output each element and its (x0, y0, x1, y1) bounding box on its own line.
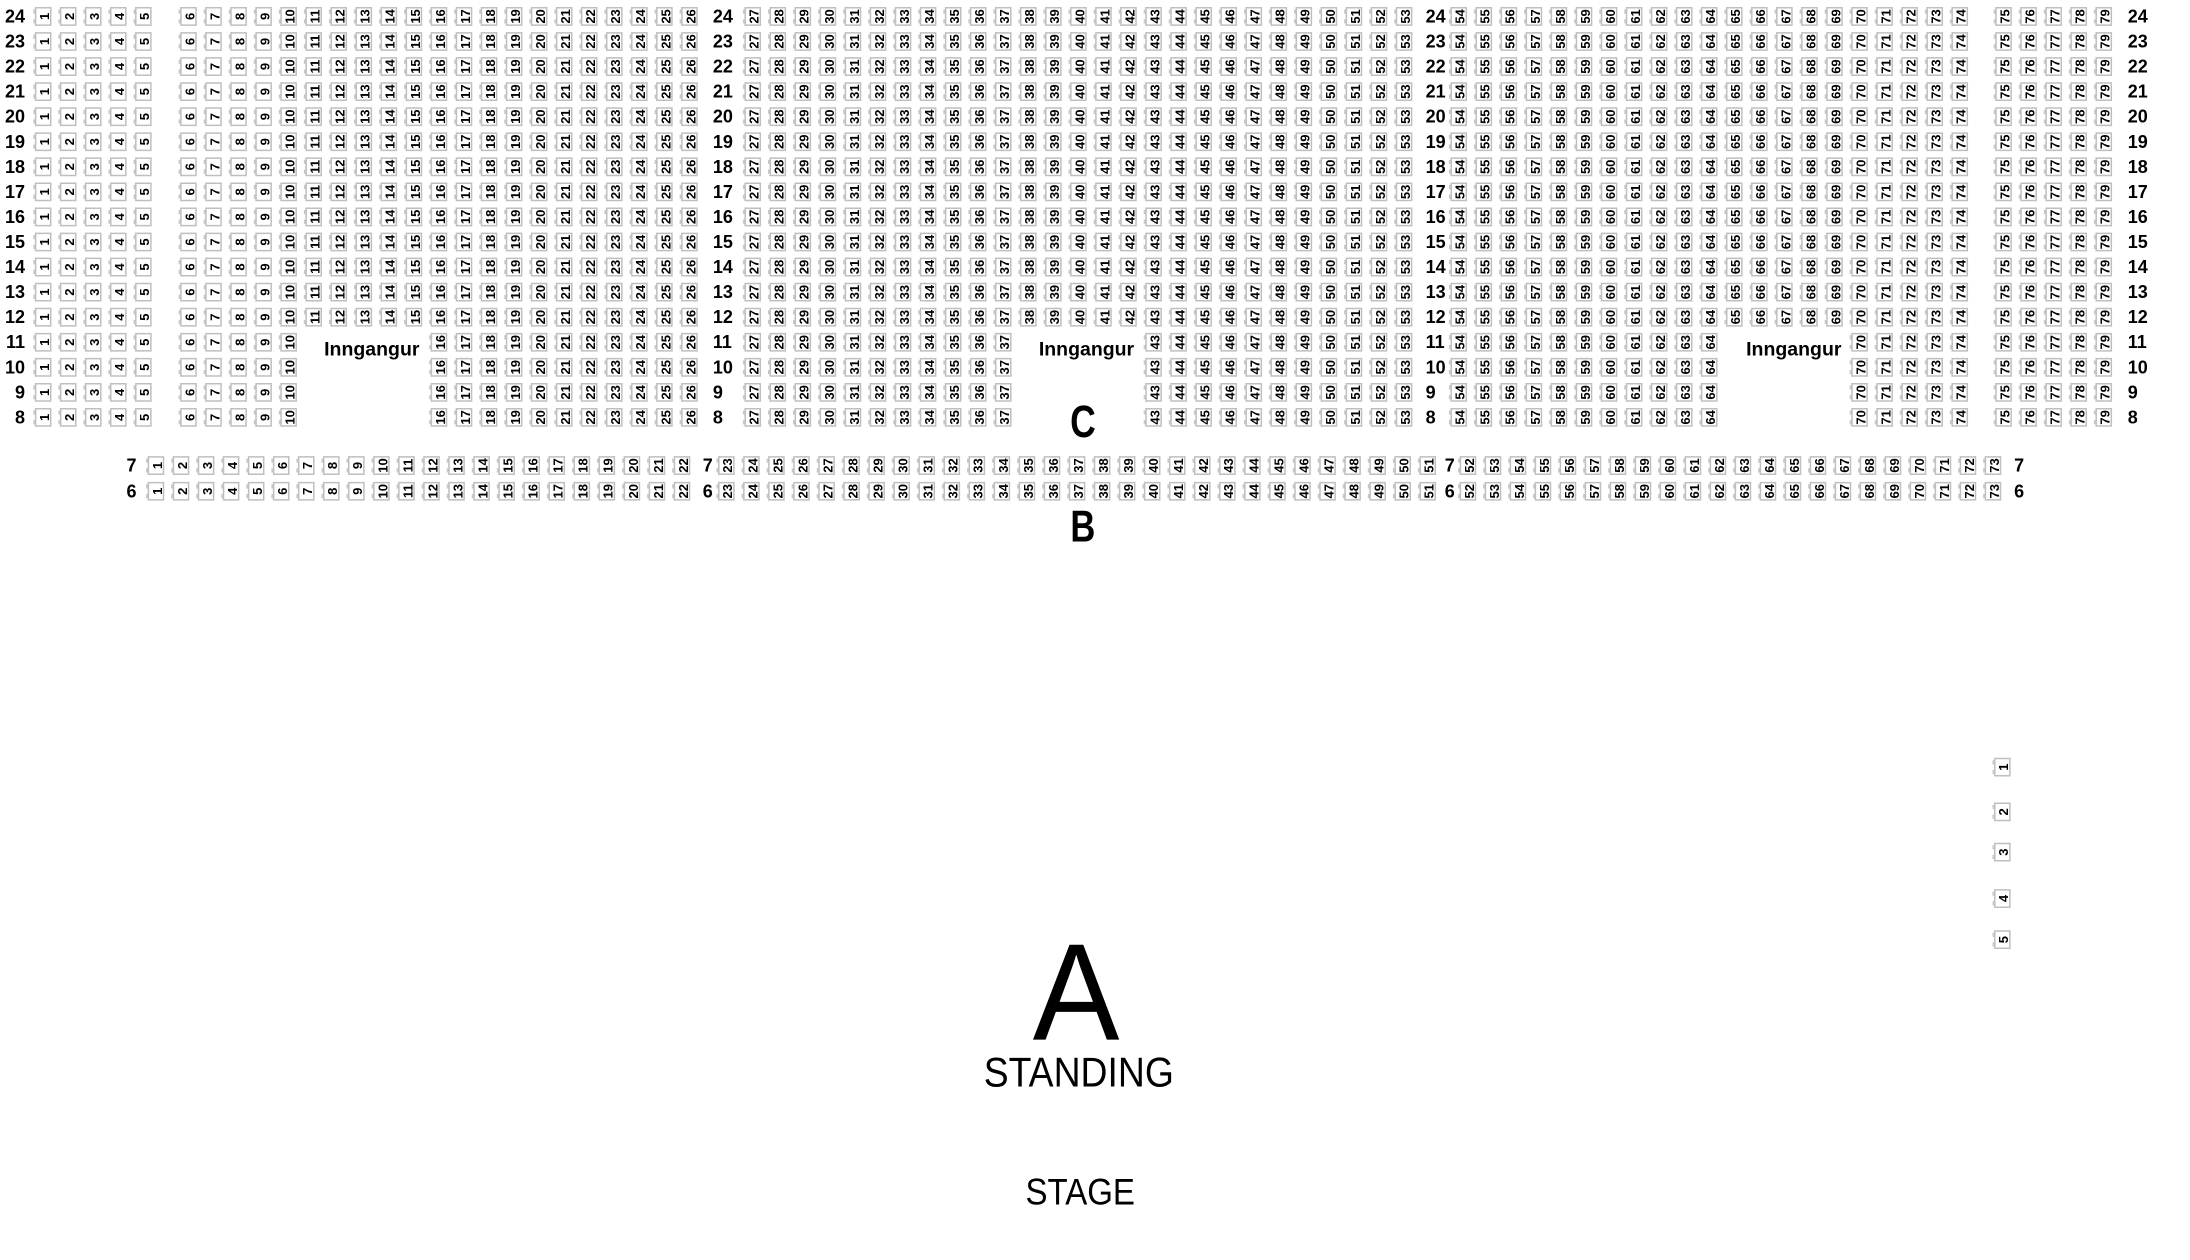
svg-text:22: 22 (583, 260, 598, 274)
svg-text:31: 31 (847, 385, 862, 399)
svg-text:4: 4 (112, 338, 127, 346)
svg-text:3: 3 (1996, 849, 2011, 856)
svg-text:9: 9 (257, 339, 272, 346)
svg-text:51: 51 (1348, 9, 1363, 23)
svg-text:17: 17 (1426, 182, 1446, 202)
svg-text:60: 60 (1603, 360, 1618, 374)
svg-text:64: 64 (1703, 59, 1718, 74)
svg-text:25: 25 (658, 34, 673, 48)
svg-text:54: 54 (1453, 159, 1468, 174)
svg-text:7: 7 (703, 456, 713, 476)
svg-text:17: 17 (458, 260, 473, 274)
svg-text:55: 55 (1478, 285, 1493, 299)
svg-text:14: 14 (475, 458, 490, 473)
svg-text:23: 23 (608, 160, 623, 174)
svg-text:3: 3 (87, 389, 102, 396)
svg-text:52: 52 (1462, 484, 1477, 498)
svg-text:50: 50 (1323, 109, 1338, 123)
svg-text:77: 77 (2048, 385, 2063, 399)
svg-text:5: 5 (137, 238, 152, 245)
svg-text:76: 76 (2022, 410, 2037, 424)
svg-text:56: 56 (1503, 335, 1518, 349)
svg-text:64: 64 (1703, 34, 1718, 49)
svg-text:60: 60 (1662, 484, 1677, 498)
svg-text:72: 72 (1904, 310, 1919, 324)
svg-text:9: 9 (2128, 382, 2138, 402)
svg-text:30: 30 (822, 260, 837, 274)
svg-text:14: 14 (383, 84, 398, 99)
svg-text:16: 16 (433, 109, 448, 123)
svg-text:60: 60 (1603, 185, 1618, 199)
svg-text:49: 49 (1298, 160, 1313, 174)
svg-text:79: 79 (2098, 360, 2113, 374)
svg-text:46: 46 (1296, 458, 1311, 472)
svg-text:5: 5 (137, 389, 152, 396)
svg-text:28: 28 (772, 385, 787, 399)
svg-text:1: 1 (37, 188, 52, 195)
svg-text:75: 75 (1997, 185, 2012, 199)
svg-text:60: 60 (1603, 9, 1618, 23)
svg-text:13: 13 (358, 160, 373, 174)
svg-text:76: 76 (2022, 360, 2037, 374)
svg-text:3: 3 (87, 13, 102, 20)
svg-text:79: 79 (2098, 285, 2113, 299)
svg-text:62: 62 (1653, 235, 1668, 249)
svg-text:44: 44 (1172, 184, 1187, 199)
svg-text:9: 9 (257, 163, 272, 170)
svg-text:45: 45 (1198, 185, 1213, 199)
svg-text:9: 9 (257, 63, 272, 70)
svg-text:15: 15 (1426, 232, 1446, 252)
svg-text:68: 68 (1803, 310, 1818, 324)
svg-text:13: 13 (358, 260, 373, 274)
svg-text:21: 21 (651, 484, 666, 498)
svg-text:59: 59 (1578, 185, 1593, 199)
svg-text:59: 59 (1578, 335, 1593, 349)
svg-text:51: 51 (1422, 458, 1437, 472)
svg-text:24: 24 (633, 334, 648, 349)
svg-text:19: 19 (1426, 132, 1446, 152)
svg-text:19: 19 (508, 185, 523, 199)
svg-text:30: 30 (822, 310, 837, 324)
svg-text:16: 16 (433, 235, 448, 249)
svg-text:41: 41 (1097, 59, 1112, 73)
svg-text:54: 54 (1453, 409, 1468, 424)
svg-text:73: 73 (1987, 458, 2002, 472)
svg-text:6: 6 (182, 138, 197, 145)
svg-text:35: 35 (947, 235, 962, 249)
svg-text:18: 18 (483, 210, 498, 224)
svg-text:32: 32 (872, 310, 887, 324)
svg-text:3: 3 (87, 113, 102, 120)
svg-text:10: 10 (5, 357, 25, 377)
svg-text:32: 32 (872, 235, 887, 249)
svg-text:67: 67 (1778, 210, 1793, 224)
svg-text:13: 13 (358, 235, 373, 249)
svg-text:13: 13 (1426, 282, 1446, 302)
svg-text:21: 21 (558, 34, 573, 48)
svg-text:45: 45 (1198, 385, 1213, 399)
svg-text:77: 77 (2048, 260, 2063, 274)
svg-text:45: 45 (1198, 210, 1213, 224)
svg-text:5: 5 (137, 213, 152, 220)
svg-text:1: 1 (1996, 764, 2011, 771)
svg-text:65: 65 (1728, 310, 1743, 324)
svg-text:4: 4 (112, 112, 127, 120)
svg-text:62: 62 (1653, 260, 1668, 274)
svg-text:57: 57 (1528, 235, 1543, 249)
svg-text:50: 50 (1323, 34, 1338, 48)
svg-text:28: 28 (772, 360, 787, 374)
svg-text:35: 35 (947, 34, 962, 48)
svg-text:65: 65 (1787, 484, 1802, 498)
svg-text:12: 12 (333, 160, 348, 174)
svg-text:45: 45 (1198, 335, 1213, 349)
svg-text:61: 61 (1628, 285, 1643, 299)
svg-text:15: 15 (408, 160, 423, 174)
svg-text:57: 57 (1528, 335, 1543, 349)
svg-text:69: 69 (1828, 59, 1843, 73)
svg-text:57: 57 (1587, 458, 1602, 472)
svg-text:38: 38 (1096, 458, 1111, 472)
svg-text:41: 41 (1097, 210, 1112, 224)
svg-text:14: 14 (713, 257, 733, 277)
svg-text:30: 30 (822, 160, 837, 174)
svg-text:57: 57 (1528, 285, 1543, 299)
svg-text:14: 14 (383, 309, 398, 324)
svg-text:66: 66 (1753, 235, 1768, 249)
svg-text:32: 32 (872, 84, 887, 98)
svg-text:28: 28 (772, 9, 787, 23)
svg-text:8: 8 (325, 488, 340, 495)
svg-text:24: 24 (633, 184, 648, 199)
svg-text:26: 26 (795, 458, 810, 472)
svg-text:51: 51 (1422, 484, 1437, 498)
svg-text:13: 13 (713, 282, 733, 302)
svg-text:20: 20 (626, 484, 641, 498)
svg-text:50: 50 (1323, 9, 1338, 23)
svg-text:33: 33 (897, 235, 912, 249)
svg-text:20: 20 (1426, 107, 1446, 127)
svg-text:12: 12 (333, 34, 348, 48)
svg-text:18: 18 (483, 135, 498, 149)
svg-text:61: 61 (1628, 160, 1643, 174)
svg-text:56: 56 (1562, 458, 1577, 472)
svg-text:15: 15 (408, 260, 423, 274)
svg-text:5: 5 (137, 63, 152, 70)
svg-text:17: 17 (458, 235, 473, 249)
svg-text:39: 39 (1047, 34, 1062, 48)
svg-text:32: 32 (872, 185, 887, 199)
svg-text:26: 26 (683, 160, 698, 174)
svg-text:49: 49 (1298, 410, 1313, 424)
svg-text:39: 39 (1047, 210, 1062, 224)
svg-text:2: 2 (62, 113, 77, 120)
svg-text:1: 1 (37, 63, 52, 70)
svg-text:73: 73 (1929, 109, 1944, 123)
svg-text:24: 24 (633, 384, 648, 399)
svg-text:36: 36 (972, 109, 987, 123)
svg-text:48: 48 (1273, 59, 1288, 73)
svg-text:51: 51 (1348, 109, 1363, 123)
svg-text:56: 56 (1562, 484, 1577, 498)
svg-text:72: 72 (1962, 484, 1977, 498)
svg-text:4: 4 (112, 238, 127, 246)
svg-text:32: 32 (872, 9, 887, 23)
svg-text:11: 11 (308, 60, 323, 74)
svg-text:12: 12 (713, 307, 733, 327)
svg-text:54: 54 (1453, 84, 1468, 99)
svg-text:9: 9 (257, 414, 272, 421)
svg-text:58: 58 (1553, 360, 1568, 374)
svg-text:60: 60 (1662, 458, 1677, 472)
svg-text:75: 75 (1997, 109, 2012, 123)
svg-text:50: 50 (1323, 185, 1338, 199)
svg-text:63: 63 (1678, 210, 1693, 224)
svg-text:34: 34 (922, 409, 937, 424)
svg-text:56: 56 (1503, 235, 1518, 249)
svg-text:73: 73 (1929, 210, 1944, 224)
svg-text:46: 46 (1223, 285, 1238, 299)
svg-text:41: 41 (1097, 235, 1112, 249)
svg-text:44: 44 (1172, 134, 1187, 149)
svg-text:58: 58 (1553, 109, 1568, 123)
svg-text:29: 29 (797, 185, 812, 199)
svg-text:37: 37 (997, 34, 1012, 48)
svg-text:47: 47 (1248, 335, 1263, 349)
svg-text:38: 38 (1022, 160, 1037, 174)
svg-text:10: 10 (1426, 357, 1446, 377)
svg-text:45: 45 (1198, 109, 1213, 123)
svg-text:54: 54 (1453, 134, 1468, 149)
svg-text:56: 56 (1503, 260, 1518, 274)
svg-text:20: 20 (5, 107, 25, 127)
svg-text:21: 21 (558, 84, 573, 98)
svg-text:57: 57 (1528, 360, 1543, 374)
svg-text:62: 62 (1653, 9, 1668, 23)
svg-text:31: 31 (847, 210, 862, 224)
svg-text:32: 32 (872, 59, 887, 73)
svg-text:2: 2 (62, 213, 77, 220)
svg-text:42: 42 (1122, 310, 1137, 324)
svg-text:23: 23 (608, 135, 623, 149)
svg-text:50: 50 (1323, 385, 1338, 399)
svg-text:51: 51 (1348, 410, 1363, 424)
svg-text:51: 51 (1348, 385, 1363, 399)
svg-text:24: 24 (633, 409, 648, 424)
svg-text:57: 57 (1528, 160, 1543, 174)
svg-text:74: 74 (1954, 284, 1969, 299)
svg-text:26: 26 (683, 135, 698, 149)
svg-text:46: 46 (1223, 59, 1238, 73)
svg-text:66: 66 (1753, 185, 1768, 199)
svg-text:39: 39 (1121, 484, 1136, 498)
svg-text:58: 58 (1553, 160, 1568, 174)
svg-text:41: 41 (1097, 260, 1112, 274)
svg-text:33: 33 (897, 285, 912, 299)
svg-text:73: 73 (1929, 360, 1944, 374)
svg-text:11: 11 (308, 210, 323, 224)
svg-text:9: 9 (1426, 382, 1436, 402)
svg-text:5: 5 (250, 462, 265, 469)
svg-text:65: 65 (1728, 185, 1743, 199)
svg-text:72: 72 (1904, 84, 1919, 98)
svg-text:78: 78 (2073, 260, 2088, 274)
svg-text:46: 46 (1223, 135, 1238, 149)
svg-text:24: 24 (633, 109, 648, 124)
svg-text:53: 53 (1398, 185, 1413, 199)
svg-text:66: 66 (1753, 59, 1768, 73)
svg-text:6: 6 (182, 63, 197, 70)
svg-text:27: 27 (820, 458, 835, 472)
svg-text:43: 43 (1147, 135, 1162, 149)
svg-text:11: 11 (308, 185, 323, 199)
svg-text:55: 55 (1478, 160, 1493, 174)
svg-text:71: 71 (1878, 84, 1893, 98)
svg-text:54: 54 (1453, 259, 1468, 274)
svg-text:39: 39 (1047, 59, 1062, 73)
svg-text:51: 51 (1348, 135, 1363, 149)
svg-text:22: 22 (5, 57, 25, 77)
svg-text:72: 72 (1904, 360, 1919, 374)
svg-text:6: 6 (182, 213, 197, 220)
svg-text:51: 51 (1348, 235, 1363, 249)
svg-text:39: 39 (1121, 458, 1136, 472)
svg-text:3: 3 (200, 488, 215, 495)
svg-text:70: 70 (1853, 310, 1868, 324)
svg-text:71: 71 (1878, 210, 1893, 224)
svg-text:75: 75 (1997, 34, 2012, 48)
svg-text:54: 54 (1453, 34, 1468, 49)
svg-text:46: 46 (1223, 160, 1238, 174)
svg-text:14: 14 (383, 8, 398, 23)
svg-text:43: 43 (1147, 59, 1162, 73)
svg-text:69: 69 (1828, 135, 1843, 149)
svg-text:17: 17 (2128, 182, 2148, 202)
svg-text:76: 76 (2022, 9, 2037, 23)
svg-text:10: 10 (283, 335, 298, 349)
svg-text:34: 34 (922, 209, 937, 224)
svg-text:71: 71 (1878, 135, 1893, 149)
svg-text:57: 57 (1528, 9, 1543, 23)
svg-text:29: 29 (797, 109, 812, 123)
svg-text:50: 50 (1323, 59, 1338, 73)
svg-text:78: 78 (2073, 185, 2088, 199)
svg-text:7: 7 (207, 138, 222, 145)
svg-text:4: 4 (225, 461, 240, 469)
svg-text:61: 61 (1628, 310, 1643, 324)
svg-text:35: 35 (947, 109, 962, 123)
svg-text:14: 14 (5, 257, 25, 277)
svg-text:17: 17 (5, 182, 25, 202)
svg-text:72: 72 (1904, 235, 1919, 249)
svg-text:57: 57 (1528, 260, 1543, 274)
svg-text:5: 5 (250, 488, 265, 495)
svg-text:36: 36 (972, 335, 987, 349)
svg-text:22: 22 (583, 360, 598, 374)
svg-text:61: 61 (1628, 185, 1643, 199)
svg-text:79: 79 (2098, 9, 2113, 23)
svg-text:72: 72 (1904, 59, 1919, 73)
svg-text:34: 34 (922, 284, 937, 299)
svg-text:10: 10 (283, 285, 298, 299)
svg-text:10: 10 (283, 160, 298, 174)
svg-text:13: 13 (358, 185, 373, 199)
svg-text:28: 28 (772, 310, 787, 324)
svg-text:6: 6 (182, 88, 197, 95)
svg-text:72: 72 (1904, 185, 1919, 199)
svg-text:28: 28 (772, 135, 787, 149)
svg-text:55: 55 (1537, 484, 1552, 498)
svg-text:15: 15 (408, 310, 423, 324)
svg-text:2: 2 (62, 38, 77, 45)
svg-text:79: 79 (2098, 260, 2113, 274)
svg-text:75: 75 (1997, 160, 2012, 174)
svg-text:47: 47 (1248, 210, 1263, 224)
svg-text:28: 28 (772, 260, 787, 274)
svg-text:5: 5 (137, 263, 152, 270)
svg-text:13: 13 (358, 9, 373, 23)
svg-text:52: 52 (1373, 59, 1388, 73)
svg-text:54: 54 (1453, 384, 1468, 399)
svg-text:7: 7 (207, 288, 222, 295)
svg-text:65: 65 (1728, 285, 1743, 299)
svg-text:43: 43 (1147, 235, 1162, 249)
svg-text:54: 54 (1453, 209, 1468, 224)
svg-text:26: 26 (683, 59, 698, 73)
svg-text:25: 25 (658, 385, 673, 399)
svg-text:65: 65 (1728, 210, 1743, 224)
svg-text:33: 33 (897, 84, 912, 98)
svg-text:51: 51 (1348, 160, 1363, 174)
svg-text:55: 55 (1478, 310, 1493, 324)
svg-text:33: 33 (897, 260, 912, 274)
svg-text:7: 7 (207, 163, 222, 170)
svg-text:10: 10 (375, 458, 390, 472)
svg-text:51: 51 (1348, 285, 1363, 299)
svg-text:56: 56 (1503, 185, 1518, 199)
svg-text:18: 18 (5, 157, 25, 177)
svg-text:32: 32 (946, 484, 961, 498)
svg-text:76: 76 (2022, 185, 2037, 199)
svg-text:64: 64 (1703, 309, 1718, 324)
svg-text:25: 25 (658, 135, 673, 149)
svg-text:70: 70 (1853, 335, 1868, 349)
svg-text:48: 48 (1273, 84, 1288, 98)
svg-text:71: 71 (1878, 410, 1893, 424)
svg-text:29: 29 (797, 235, 812, 249)
svg-text:75: 75 (1997, 9, 2012, 23)
svg-text:30: 30 (822, 410, 837, 424)
svg-text:19: 19 (2128, 132, 2148, 152)
svg-text:59: 59 (1578, 260, 1593, 274)
svg-text:13: 13 (358, 109, 373, 123)
svg-text:48: 48 (1273, 335, 1288, 349)
svg-text:30: 30 (822, 34, 837, 48)
svg-text:2: 2 (62, 88, 77, 95)
svg-text:56: 56 (1503, 135, 1518, 149)
svg-text:62: 62 (1712, 458, 1727, 472)
svg-text:61: 61 (1628, 260, 1643, 274)
svg-text:75: 75 (1997, 385, 2012, 399)
svg-text:66: 66 (1753, 84, 1768, 98)
svg-text:63: 63 (1678, 260, 1693, 274)
svg-text:75: 75 (1997, 310, 2012, 324)
svg-text:4: 4 (112, 37, 127, 45)
svg-text:55: 55 (1478, 210, 1493, 224)
svg-text:45: 45 (1198, 34, 1213, 48)
svg-text:45: 45 (1198, 135, 1213, 149)
